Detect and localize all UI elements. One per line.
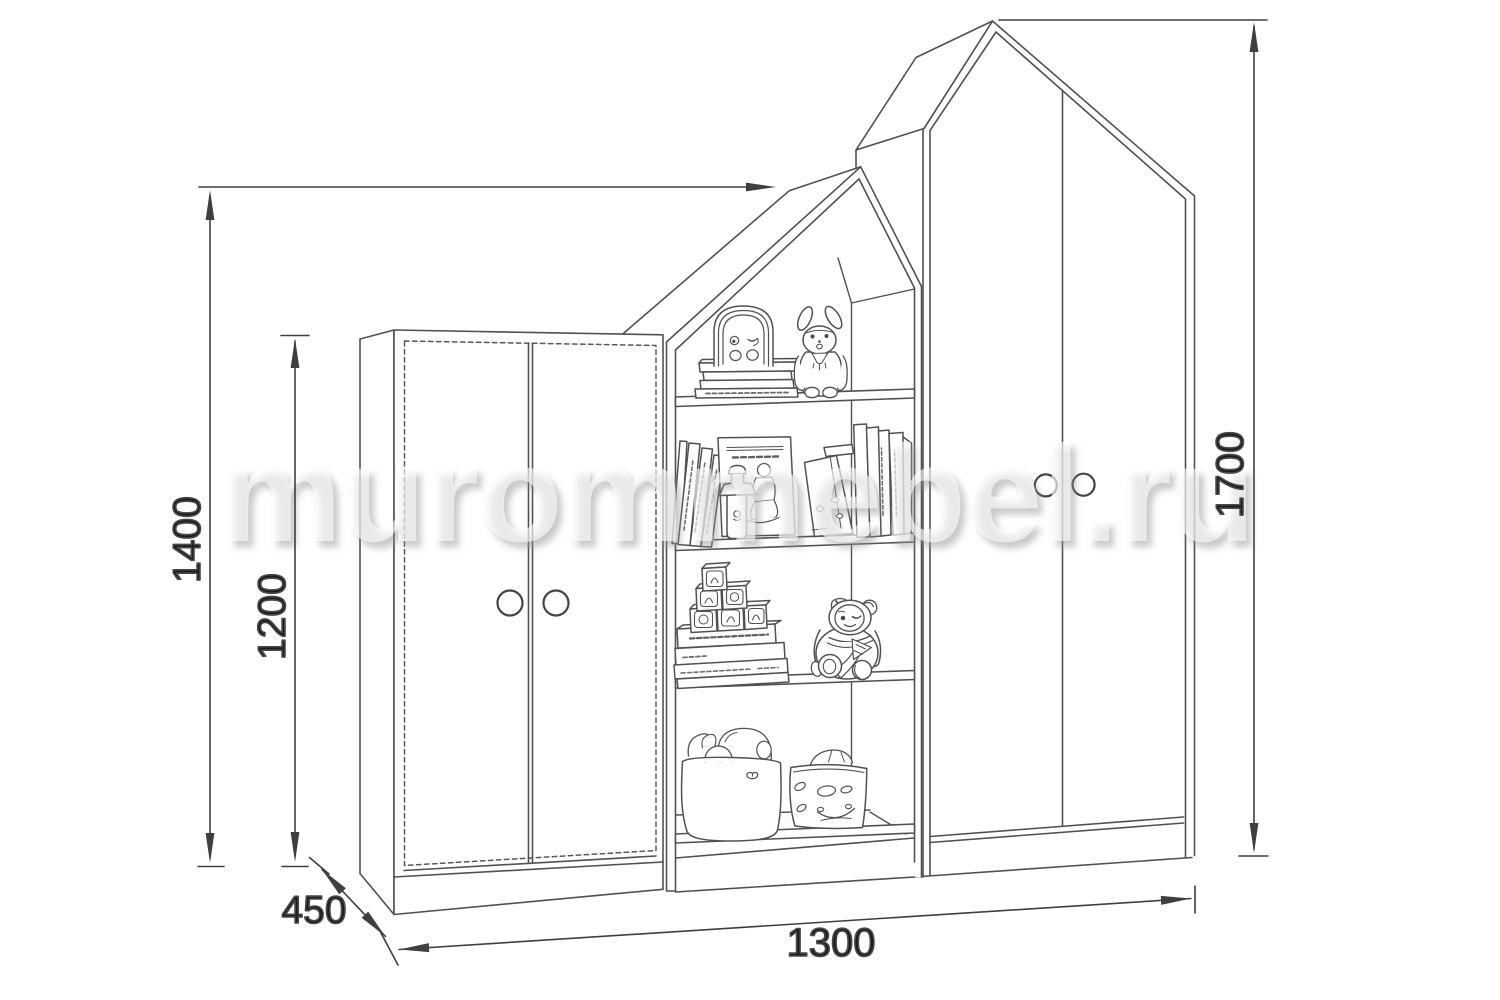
svg-text:1700: 1700 bbox=[1209, 431, 1252, 518]
svg-text:450: 450 bbox=[281, 889, 346, 932]
svg-text:1200: 1200 bbox=[251, 573, 294, 660]
svg-text:1300: 1300 bbox=[787, 921, 876, 965]
svg-text:1400: 1400 bbox=[166, 496, 209, 583]
